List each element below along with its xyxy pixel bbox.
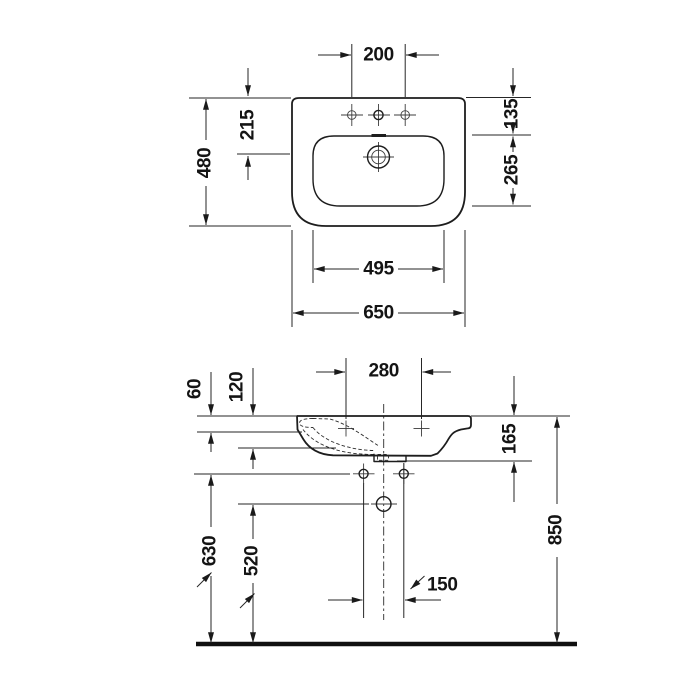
pointer-150 <box>411 576 425 589</box>
washbasin-technical-drawing: 200 480 215 135 265 495 650 <box>0 0 700 700</box>
dim-fixing-hole-spacing: 280 <box>368 361 399 382</box>
top-view: 200 480 215 135 265 495 650 <box>189 44 531 327</box>
drain-top <box>363 142 394 172</box>
dim-outlet-height: 520 <box>242 546 263 577</box>
dim-rim-to-front-apron: 60 <box>185 379 206 399</box>
top-view-dimension-arrows <box>206 55 513 313</box>
reference-pointer-arrows <box>197 573 425 609</box>
dim-rim-height: 850 <box>546 515 567 546</box>
dim-rim-to-rear-underside: 165 <box>500 423 521 454</box>
dim-bowl-front-back: 265 <box>502 154 523 185</box>
hidden-bowl-contours <box>300 419 389 461</box>
pointer-520 <box>240 594 255 609</box>
dim-apron-underside-height: 630 <box>200 536 221 567</box>
dim-bowl-width: 495 <box>363 259 394 280</box>
side-view: 280 60 120 165 850 630 520 150 <box>185 358 578 644</box>
dim-overall-width: 650 <box>363 303 394 324</box>
technical-drawing-page: 200 480 215 135 265 495 650 <box>0 0 700 700</box>
dim-rear-to-bowl-edge: 135 <box>502 98 523 129</box>
dim-rim-to-bowl-bottom: 120 <box>227 372 248 403</box>
pointer-630 <box>197 573 212 588</box>
tap-holes <box>341 104 416 126</box>
dim-overall-depth: 480 <box>195 148 216 179</box>
dim-rear-to-drain: 215 <box>238 109 259 140</box>
dim-outlet-hole-spacing: 150 <box>427 575 458 596</box>
top-view-extension-lines <box>189 44 531 327</box>
dim-tap-hole-spacing: 200 <box>363 45 394 66</box>
